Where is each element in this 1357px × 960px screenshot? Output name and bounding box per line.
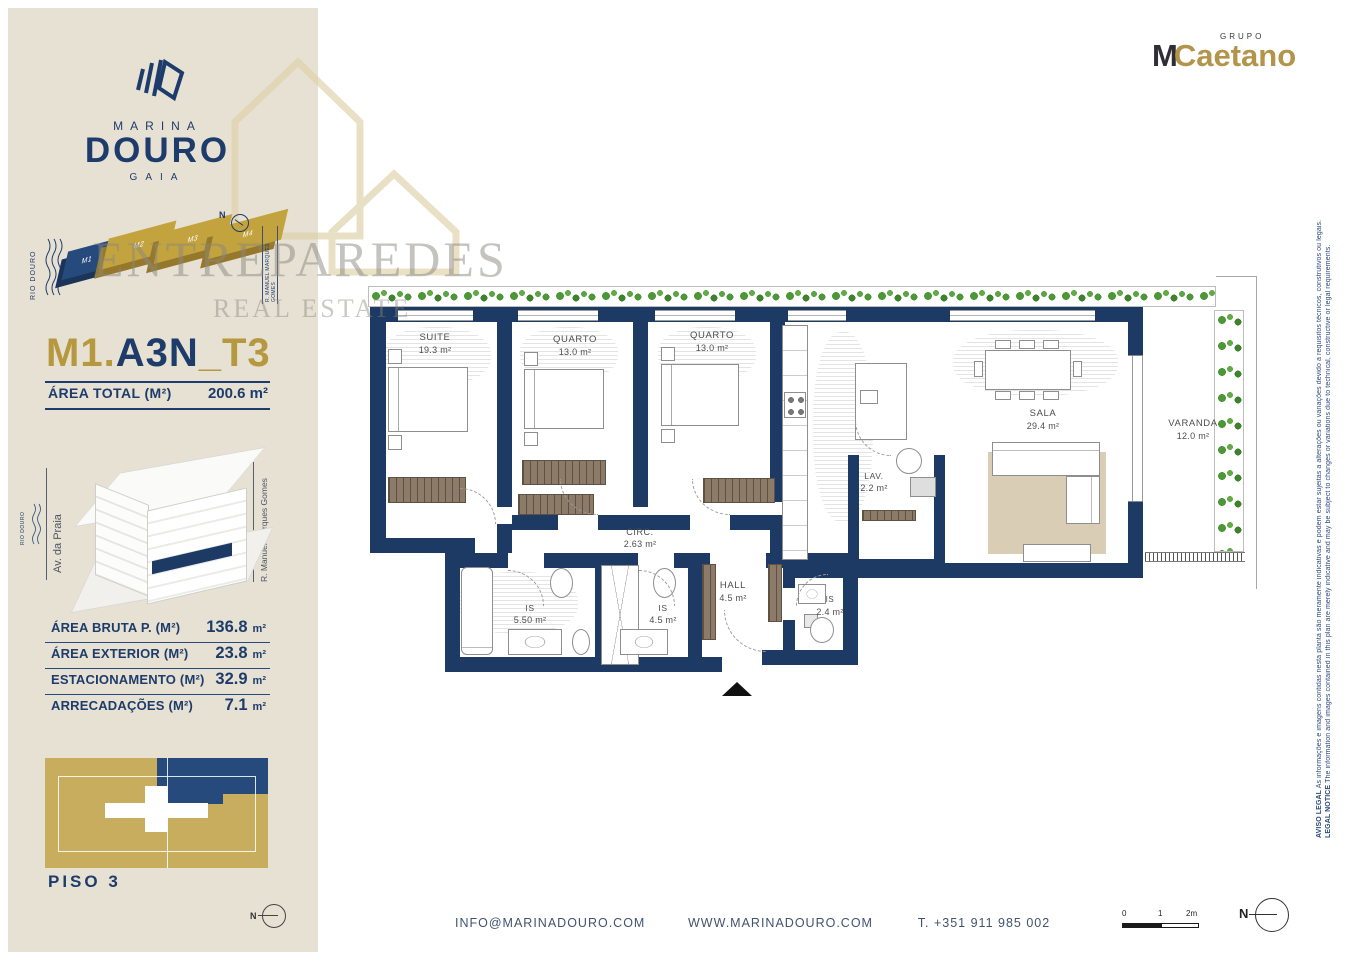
room-name: LAV. [848,470,900,482]
street-right-label: R. Manuel Marques Gomes [259,464,269,582]
sidebar-north-label: N [250,911,257,921]
area-value: 32.9 [215,670,247,688]
toilet [550,568,573,598]
door-gap [508,553,544,568]
compass-needle [235,219,244,226]
room-area: 2.2 m² [848,482,900,494]
nightstand [661,429,675,443]
door-arc [692,479,730,515]
area-total-underline [45,408,270,410]
tv-cabinet [1023,544,1091,562]
footer-north-label: N [1239,906,1248,921]
marina-douro-logo: MARINA DOURO GAIA [60,50,255,183]
footer-compass-icon [1255,898,1289,932]
door-gap [690,515,730,530]
wall [370,538,475,553]
chair [974,361,983,377]
unit-title-m1: M1. [46,331,116,375]
area-total-row: ÁREA TOTAL (M²) 200.6 m² [48,385,268,402]
area-label: ARRECADAÇÕES (M²) [51,698,193,713]
chair [1019,391,1035,400]
site-plan-street-label: R. MANUEL MARQUES GOMES [265,228,277,302]
room-label-suite: SUITE 19.3 m² [395,332,475,356]
room-label-quarto-2: QUARTO 13.0 m² [672,330,752,354]
room-name: CIRC. [605,526,675,538]
room-label-circ: CIRC. 2.63 m² [605,526,675,550]
scale-bar: 0 1 2m [1122,909,1200,931]
title-underline [45,381,270,383]
room-area: 19.3 m² [395,344,475,356]
door-gap [638,553,674,568]
legal-pt: AVISO LEGAL As informações e imagens con… [1316,128,1323,838]
sofa [992,442,1100,476]
chair [995,340,1011,349]
room-area: 2.4 m² [804,606,856,618]
river-waves-icon [44,237,66,301]
room-name: SALA [998,408,1088,420]
grupo-mcaetano-logo: GRUPO MCaetano [1152,32,1332,77]
room-label-is-1: IS 5.50 m² [495,602,565,626]
room-area: 29.4 m² [998,420,1088,432]
area-unit: m² [253,649,266,661]
unit-title-sep: _ [199,331,222,375]
area-unit: m² [253,701,266,713]
area-label: ESTACIONAMENTO (M²) [51,672,205,687]
scale-bar-black [1122,923,1161,928]
chair [995,391,1011,400]
laundry-machine [910,477,936,497]
sink [620,629,668,655]
legal-en: LEGAL NOTICE The information and images … [1325,128,1332,838]
window [398,310,473,321]
chair [1019,340,1035,349]
wall [445,657,722,672]
sliding-door [1128,355,1143,502]
window [655,310,735,321]
legal-en-label: LEGAL NOTICE [1325,785,1332,838]
door-arc [724,610,766,652]
room-area: 13.0 m² [672,342,752,354]
room-label-hall: HALL 4.5 m² [698,580,768,604]
sink [508,629,562,655]
scale-2m: 2m [1186,909,1197,918]
room-area: 4.5 m² [698,592,768,604]
area-total-label: ÁREA TOTAL (M²) [48,385,172,401]
footer-phone: T. +351 911 985 002 [900,916,1068,930]
area-row-exterior: ÁREA EXTERIOR (M²) 23.8m² [45,643,270,669]
room-label-quarto-1: QUARTO 13.0 m² [535,334,615,358]
lav-bench [862,510,916,521]
door-arc [460,488,496,524]
room-area: 4.5 m² [630,614,696,626]
marina-douro-logo-icon [128,50,188,112]
wardrobe [388,477,466,503]
hedge-top [368,286,1216,307]
site-plan-street-rule-a [262,226,263,304]
unit-title: M1.A3N_T3 [46,331,271,376]
floor-key-label: PISO 3 [48,872,121,892]
room-name: IS [630,602,696,614]
stove-icon [784,392,806,418]
site-plan-street-rule-b [277,226,278,304]
door-gap [710,553,766,568]
bed [661,364,739,426]
street-left-rule [46,468,47,580]
building-river-waves-icon [31,502,45,550]
building-river-label: RIO DOURO [20,500,26,545]
site-plan-compass-icon [231,214,249,232]
legal-pt-text: As informações e imagens contidas nesta … [1316,220,1323,790]
floor-key-core-h [105,803,208,818]
scale-1: 1 [1158,909,1162,918]
area-value: 7.1 [225,696,248,714]
room-label-lav: LAV. 2.2 m² [848,470,900,494]
scale-bar-white [1161,923,1199,928]
varanda-railing [1145,552,1245,562]
bathtub [461,567,493,655]
street-left-label: Av. da Praia [52,478,64,573]
room-label-is-2: IS 4.5 m² [630,602,696,626]
sidebar-compass-icon [262,904,286,928]
site-plan-river-label: RIO DOURO [30,240,37,300]
room-area: 5.50 m² [495,614,565,626]
room-name: QUARTO [672,330,752,342]
entrance-arrow-icon [722,682,752,696]
compass-needle [258,915,278,916]
door-gap [558,515,598,530]
wall [783,568,795,588]
wall [633,307,648,507]
area-row-estacionamento: ESTACIONAMENTO (M²) 32.9m² [45,669,270,695]
room-name: IS [804,594,856,606]
window [950,310,1095,321]
area-total-value: 200.6 m² [208,385,268,402]
island-sink [860,390,878,404]
area-row-arrecadacoes: ARRECADAÇÕES (M²) 7.1m² [45,695,270,721]
dining-table [985,350,1071,390]
nightstand [524,432,538,446]
compass-needle [1249,914,1277,915]
window [518,310,598,321]
areas-table: ÁREA BRUTA P. (M²) 136.8m² ÁREA EXTERIOR… [45,617,270,721]
room-name: SUITE [395,332,475,344]
room-name: QUARTO [535,334,615,346]
wall [445,553,460,672]
logo-gaia: GAIA [60,172,255,183]
chair [1073,361,1082,377]
chair [1043,340,1059,349]
unit-title-t3: T3 [222,331,271,375]
nightstand [388,435,402,450]
wall [497,524,512,553]
area-label: ÁREA BRUTA P. (M²) [51,620,180,635]
floor-plan: SUITE 19.3 m² QUARTO 13.0 m² QUARTO 13.0… [358,272,1268,717]
window [788,310,846,321]
area-unit: m² [253,675,266,687]
legal-pt-label: AVISO LEGAL [1316,790,1323,838]
room-name: IS [495,602,565,614]
room-label-sala: SALA 29.4 m² [998,408,1088,432]
area-label: ÁREA EXTERIOR (M²) [51,646,188,661]
site-plan-north-label: N [219,210,226,220]
hall-cabinet [768,564,782,622]
legal-en-text: The information and images contained in … [1325,245,1332,785]
room-area: 2.63 m² [605,538,675,550]
area-unit: m² [253,623,266,635]
wall [783,620,795,665]
wall [370,307,386,540]
footer-website: WWW.MARINADOURO.COM [688,916,854,930]
room-label-varanda: VARANDA 12.0 m² [1148,418,1238,442]
toilet [810,617,834,643]
room-label-is-3: IS 2.4 m² [804,594,856,618]
sofa [1066,476,1100,524]
wall [497,307,512,507]
logo-caetano: Caetano [1174,38,1296,73]
floor-key-plan [45,758,268,868]
bed [388,367,468,432]
area-value: 136.8 [206,618,247,636]
area-value: 23.8 [215,644,247,662]
wall [843,577,858,665]
area-row-bruta: ÁREA BRUTA P. (M²) 136.8m² [45,617,270,643]
plan-sheet: MARINA DOURO GAIA RIO DOURO M1 M2 M3 M4 … [0,0,1357,960]
legal-notice: AVISO LEGAL As informações e imagens con… [1316,128,1332,838]
chair [1043,391,1059,400]
unit-title-a3n: A3N [116,331,199,375]
scale-0: 0 [1122,909,1126,918]
room-name: HALL [698,580,768,592]
room-area: 12.0 m² [1148,430,1238,442]
kitchen-counter [782,325,808,560]
footer-email: INFO@MARINADOURO.COM [455,916,631,930]
bed [524,369,604,429]
room-area: 13.0 m² [535,346,615,358]
logo-douro: DOURO [60,133,255,169]
bidet [572,629,590,655]
room-name: VARANDA [1148,418,1238,430]
